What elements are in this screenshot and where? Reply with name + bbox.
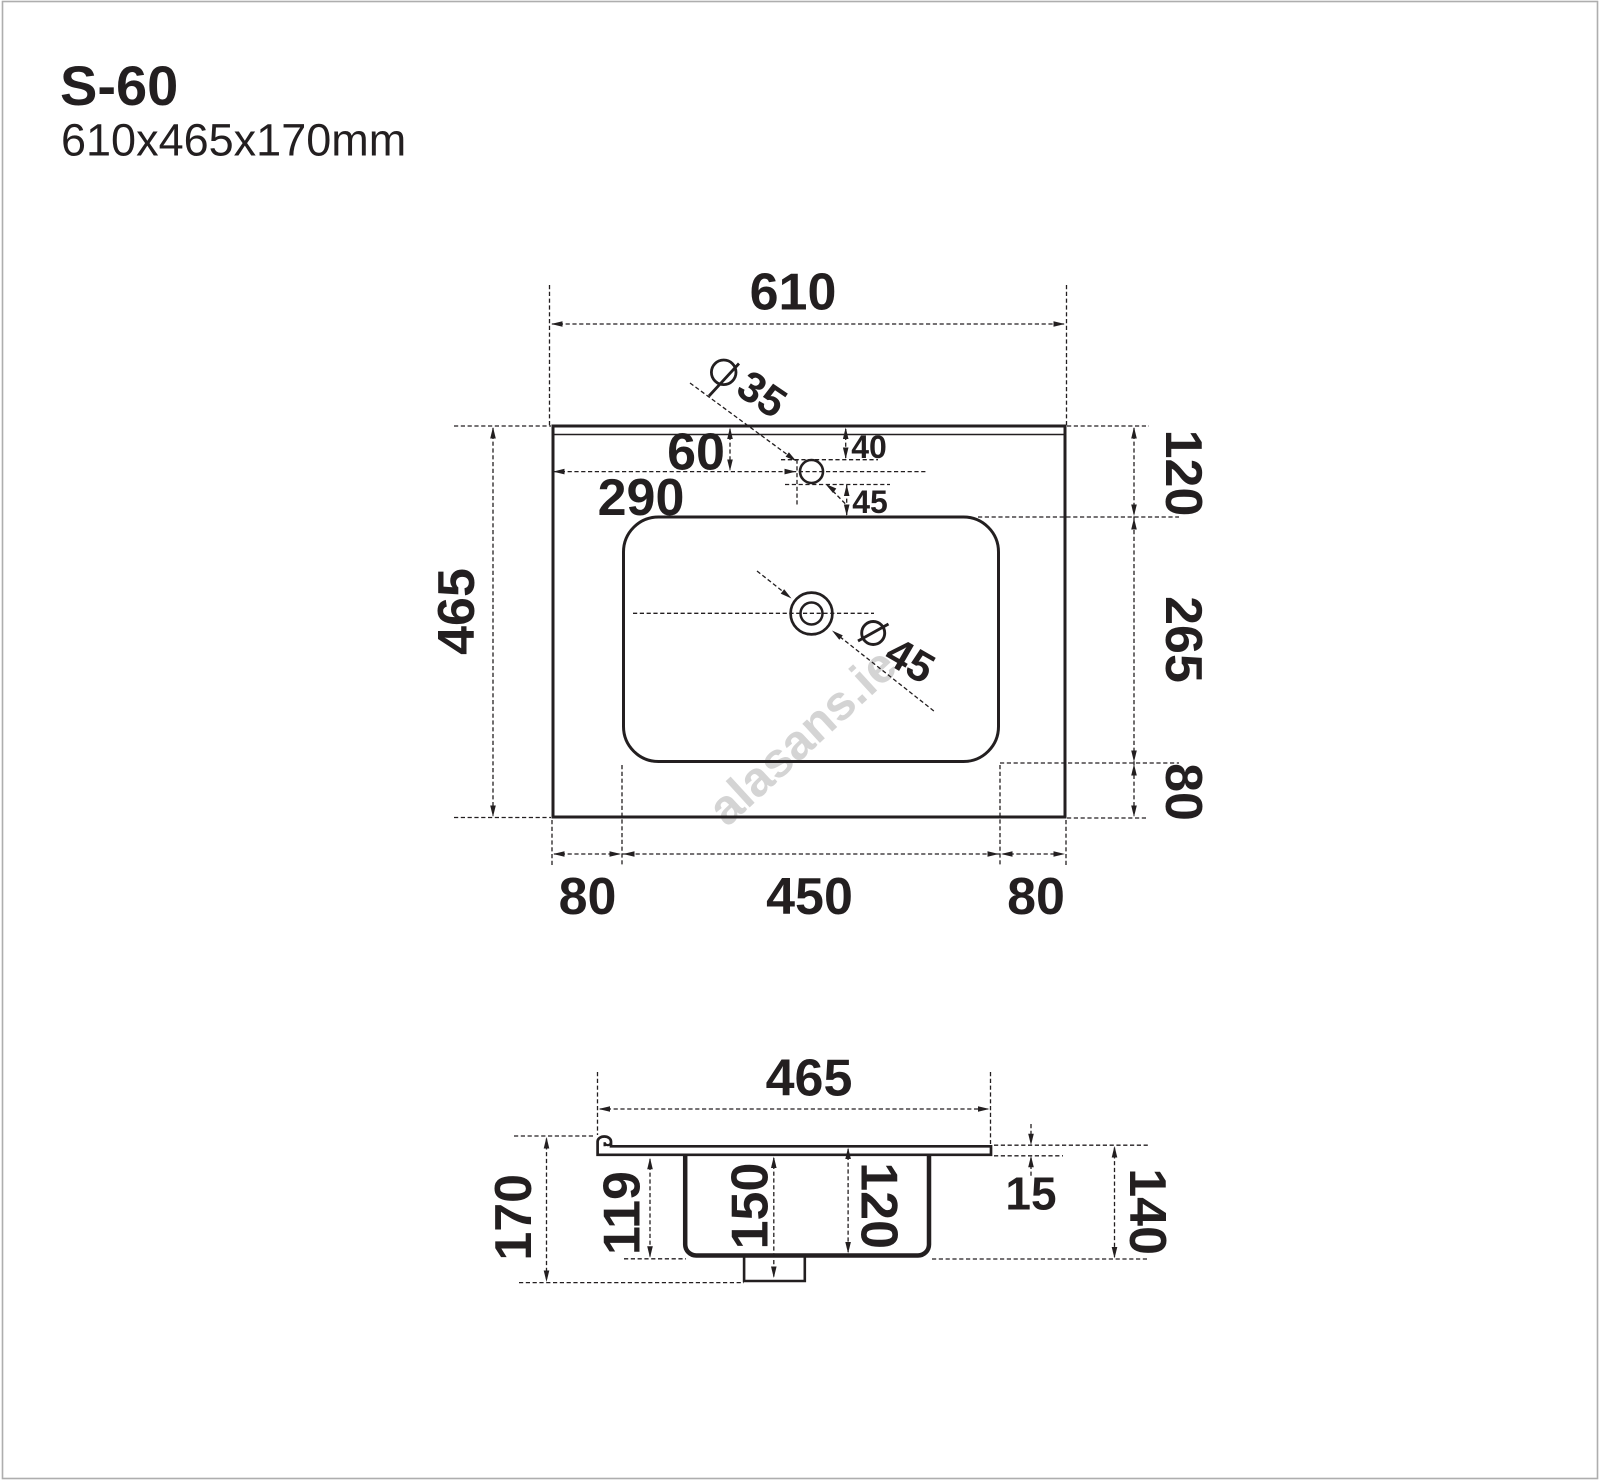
svg-text:265: 265	[1154, 596, 1212, 683]
svg-text:15: 15	[1005, 1167, 1056, 1219]
svg-text:150: 150	[722, 1163, 780, 1250]
svg-text:140: 140	[1118, 1168, 1176, 1255]
svg-text:45: 45	[852, 484, 888, 520]
svg-text:S-60: S-60	[60, 54, 178, 117]
svg-text:80: 80	[1007, 868, 1065, 926]
svg-text:40: 40	[851, 429, 887, 465]
svg-text:60: 60	[667, 423, 725, 481]
svg-text:120: 120	[1154, 430, 1212, 517]
svg-text:170: 170	[485, 1174, 543, 1261]
svg-text:450: 450	[766, 868, 853, 926]
svg-text:119: 119	[594, 1171, 652, 1255]
svg-text:610: 610	[750, 264, 837, 322]
svg-text:610x465x170mm: 610x465x170mm	[61, 115, 406, 166]
svg-text:120: 120	[849, 1162, 907, 1249]
svg-text:465: 465	[428, 568, 486, 655]
svg-text:80: 80	[559, 868, 617, 926]
svg-text:465: 465	[766, 1050, 853, 1108]
svg-text:80: 80	[1154, 763, 1212, 821]
